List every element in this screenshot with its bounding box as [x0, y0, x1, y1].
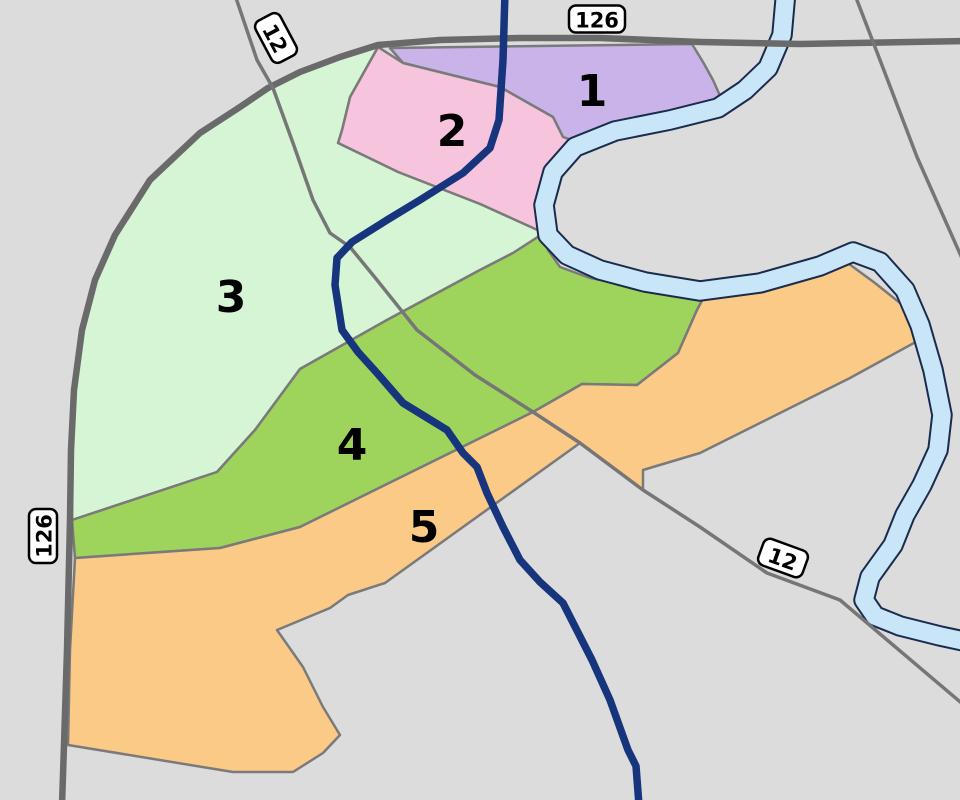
zone-2-label: 2	[437, 106, 468, 157]
zone-4-label: 4	[337, 420, 368, 471]
zone-1-label: 1	[577, 66, 608, 117]
shield-label: 126	[33, 514, 57, 558]
zone-5-label: 5	[409, 502, 440, 553]
district-map: 123451261212612	[0, 0, 960, 800]
route-shield-126-left: 126	[29, 509, 57, 563]
map-container: 123451261212612	[0, 0, 960, 800]
zone-3-label: 3	[216, 272, 247, 323]
shield-label: 126	[575, 9, 619, 33]
route-shield-126-top: 126	[569, 6, 625, 33]
